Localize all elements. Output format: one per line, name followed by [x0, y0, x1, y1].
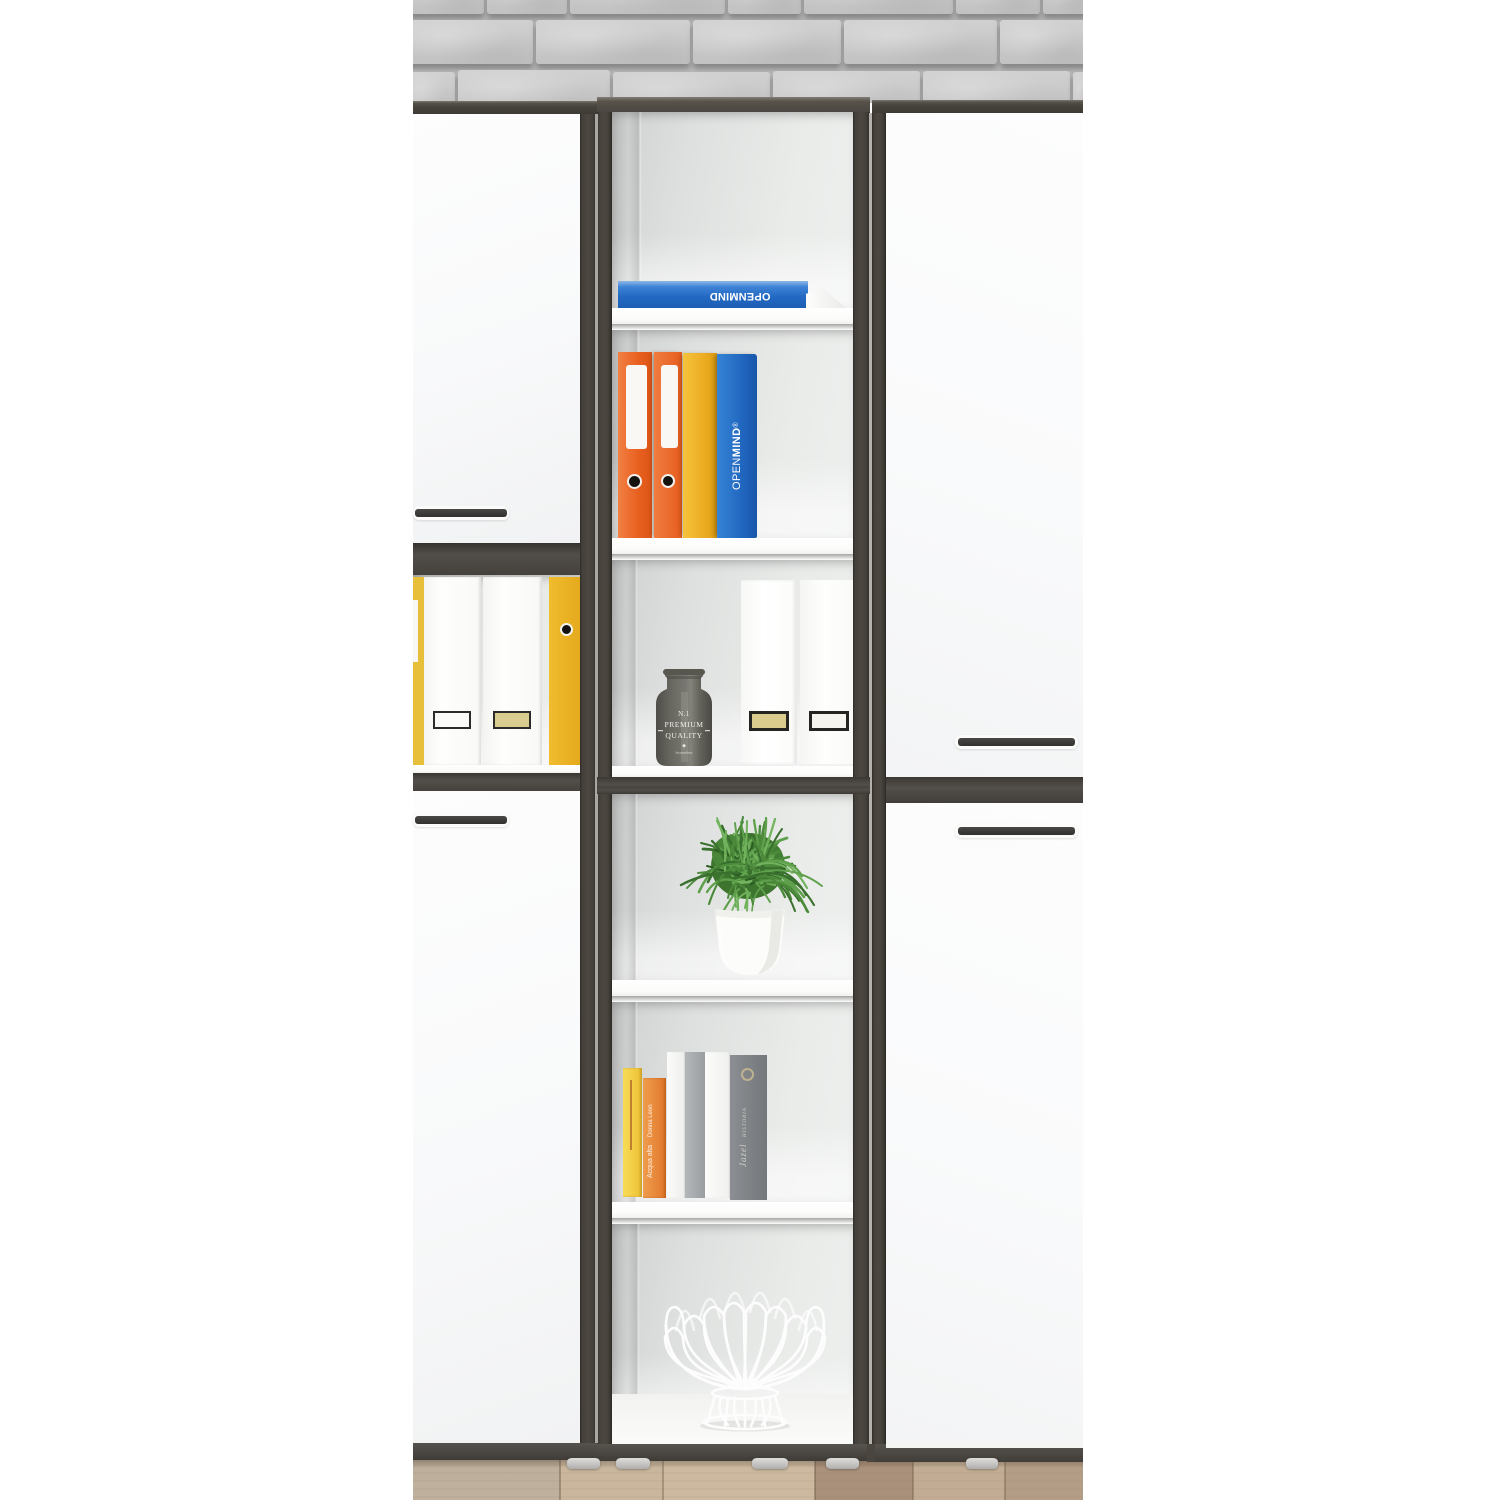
svg-text:◆: ◆: [682, 743, 686, 749]
svg-text:N.1: N.1: [678, 710, 690, 718]
svg-text:Homeline: Homeline: [676, 750, 694, 755]
svg-text:QUALITY: QUALITY: [665, 731, 702, 740]
svg-text:PREMIUM: PREMIUM: [665, 720, 704, 729]
